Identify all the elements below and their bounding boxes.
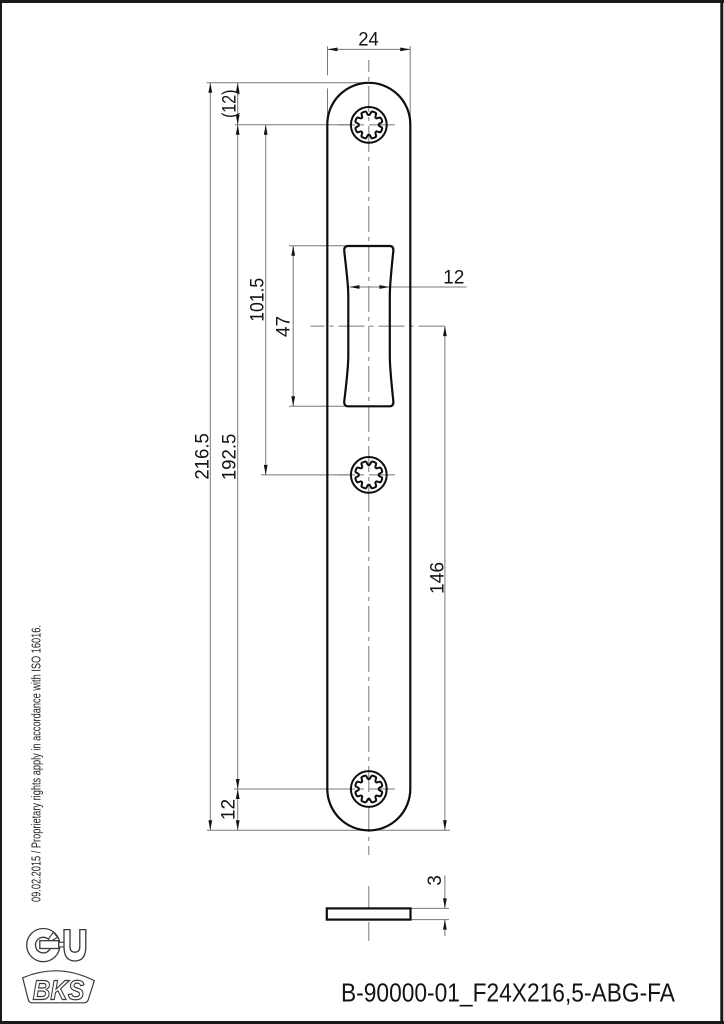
svg-text:12: 12 bbox=[219, 799, 240, 820]
svg-text:12: 12 bbox=[443, 267, 464, 288]
svg-text:47: 47 bbox=[274, 316, 295, 337]
svg-text:09.02.2015 / Proprietary right: 09.02.2015 / Proprietary rights apply in… bbox=[29, 625, 43, 902]
svg-text:B-90000-01_F24X216,5-ABG-FA: B-90000-01_F24X216,5-ABG-FA bbox=[341, 980, 675, 1008]
svg-text:192.5: 192.5 bbox=[220, 434, 241, 481]
svg-text:3: 3 bbox=[425, 875, 446, 886]
svg-text:BKS: BKS bbox=[33, 974, 85, 1005]
svg-text:216.5: 216.5 bbox=[193, 433, 214, 480]
svg-text:101.5: 101.5 bbox=[248, 278, 269, 322]
svg-text:146: 146 bbox=[428, 562, 449, 594]
svg-text:(12): (12) bbox=[220, 90, 241, 119]
svg-text:24: 24 bbox=[358, 30, 379, 51]
